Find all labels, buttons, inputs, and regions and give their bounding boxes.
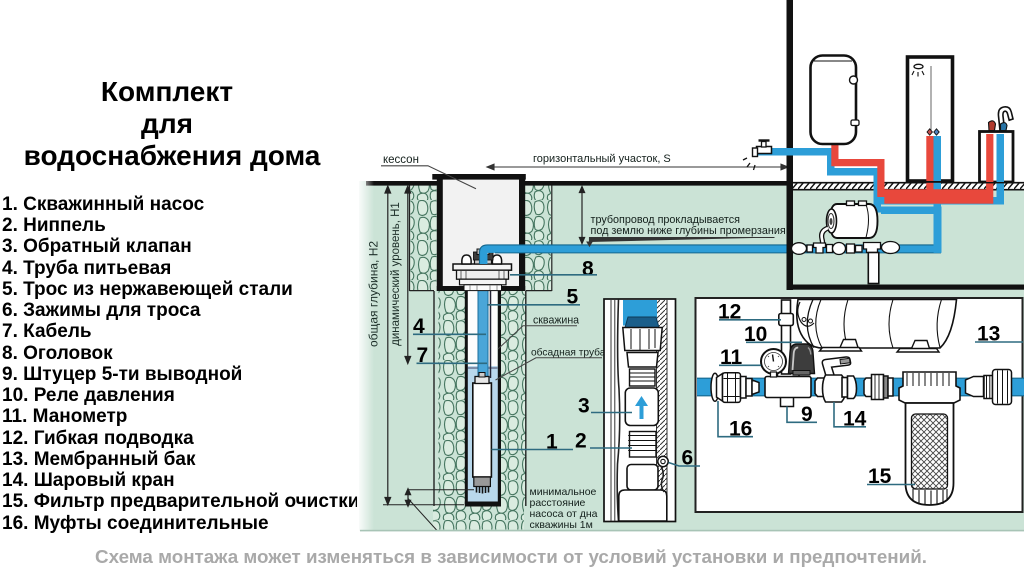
svg-text:9. Штуцер 5-ти выводной: 9. Штуцер 5-ти выводной bbox=[2, 364, 242, 385]
svg-text:скважины 1м: скважины 1м bbox=[530, 519, 593, 531]
svg-text:8: 8 bbox=[582, 258, 594, 281]
svg-text:Схема монтажа может изменяться: Схема монтажа может изменяться в зависим… bbox=[95, 546, 927, 567]
svg-text:динамический уровень, Н1: динамический уровень, Н1 bbox=[390, 202, 402, 346]
svg-text:14. Шаровый кран: 14. Шаровый кран bbox=[2, 470, 175, 491]
svg-text:8. Оголовок: 8. Оголовок bbox=[2, 343, 113, 364]
svg-text:2: 2 bbox=[575, 430, 587, 453]
svg-text:12. Гибкая подводка: 12. Гибкая подводка bbox=[2, 428, 194, 449]
svg-text:под землю ниже глубины промерз: под землю ниже глубины промерзания bbox=[591, 225, 786, 237]
svg-text:горизонтальный участок, S: горизонтальный участок, S bbox=[533, 153, 671, 165]
svg-text:13. Мембранный бак: 13. Мембранный бак bbox=[2, 449, 196, 470]
svg-text:3. Обратный клапан: 3. Обратный клапан bbox=[2, 236, 192, 257]
svg-text:для: для bbox=[141, 108, 193, 139]
svg-text:4. Труба питьевая: 4. Труба питьевая bbox=[2, 258, 171, 279]
svg-text:общая глубина, Н2: общая глубина, Н2 bbox=[367, 241, 381, 347]
svg-text:5. Трос из нержавеющей стали: 5. Трос из нержавеющей стали bbox=[2, 279, 293, 300]
svg-text:водоснабжения дома: водоснабжения дома bbox=[24, 140, 321, 171]
svg-text:обсадная труба: обсадная труба bbox=[531, 347, 606, 359]
svg-text:10. Реле давления: 10. Реле давления bbox=[2, 385, 175, 406]
svg-text:1. Скважинный насос: 1. Скважинный насос bbox=[2, 194, 205, 215]
svg-text:16. Муфты соединительные: 16. Муфты соединительные bbox=[2, 513, 269, 534]
svg-text:15. Фильтр предварительной очи: 15. Фильтр предварительной очистки bbox=[2, 491, 359, 512]
svg-text:7. Кабель: 7. Кабель bbox=[2, 321, 92, 342]
svg-text:кессон: кессон bbox=[383, 154, 419, 166]
svg-text:6. Зажимы для троса: 6. Зажимы для троса bbox=[2, 300, 201, 321]
svg-text:скважина: скважина bbox=[533, 315, 579, 327]
svg-text:Комплект: Комплект bbox=[101, 76, 233, 107]
svg-text:2. Ниппель: 2. Ниппель bbox=[2, 215, 106, 236]
svg-text:11. Манометр: 11. Манометр bbox=[2, 406, 127, 427]
svg-text:3: 3 bbox=[578, 395, 590, 418]
